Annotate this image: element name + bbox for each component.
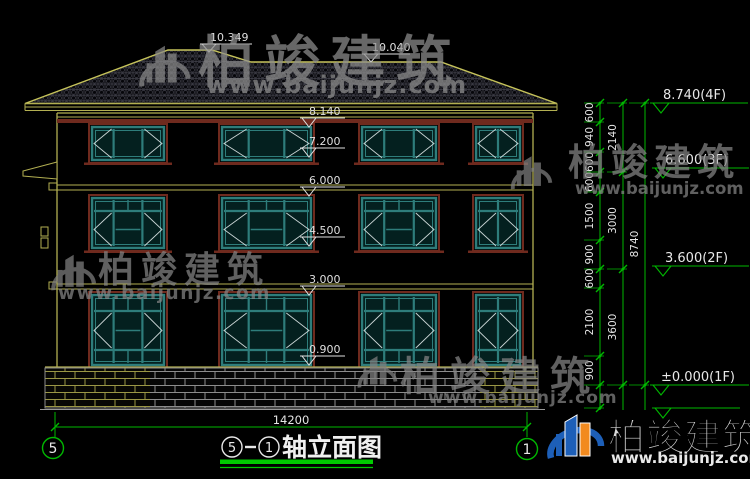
level-marker-1f: ±0.000(1F)	[650, 370, 749, 395]
window-frame	[362, 127, 436, 160]
window-sill	[354, 163, 444, 166]
axis-bubble-left: 5	[43, 438, 64, 459]
window	[354, 195, 444, 253]
window-sill	[354, 251, 444, 254]
left-ledge-upper	[49, 183, 57, 190]
level-label: 3.000	[309, 273, 341, 286]
window	[468, 195, 528, 253]
dim-value: 600	[584, 102, 596, 122]
left-canopy	[23, 162, 57, 179]
window	[84, 195, 172, 253]
axis-bubble-right: 1	[517, 439, 538, 460]
width-dim-value: 14200	[273, 413, 310, 427]
watermark-brand: 柏竣建筑	[568, 141, 740, 184]
brand-logo-color-icon	[550, 415, 601, 458]
level-label: 8.140	[309, 105, 341, 118]
window-sill	[468, 163, 528, 166]
cad-elevation-viewport: 10.349 10.040 8.140 7.200 6.000 4.500 3.…	[0, 0, 750, 479]
level-label: 6.000	[309, 174, 341, 187]
window-sill	[214, 163, 319, 166]
title-block: 5 1 轴立面图	[220, 433, 382, 468]
watermark-right: 柏竣建筑 www.baijunjz.com	[513, 141, 744, 198]
watermark-url: www.baijunjz.com	[575, 179, 744, 198]
dim-value: 1500	[584, 203, 596, 230]
plinth-bricks-left-corner	[45, 368, 150, 408]
level-label: 4.500	[309, 224, 341, 237]
window-frame	[92, 127, 164, 160]
floor3-band	[57, 185, 533, 190]
window-frame	[222, 127, 311, 160]
left-pipe-upper	[41, 227, 48, 236]
roof-eave-band	[25, 104, 557, 111]
level-label: 0.900	[309, 343, 341, 356]
dim-value: 600	[584, 268, 596, 288]
watermark-url: www.baijunjz.com	[611, 449, 750, 467]
title-axis-from: 5	[228, 441, 236, 456]
level-label: ±0.000(1F)	[661, 370, 735, 385]
dim-value: 8740	[629, 231, 641, 258]
left-pipe-lower	[41, 238, 48, 248]
dim-value: 2100	[584, 309, 596, 336]
watermark-url: www.baijunjz.com	[428, 388, 618, 408]
title-axis-to: 1	[265, 441, 273, 456]
level-marker-8140: 8.140	[300, 105, 345, 127]
roof-beam-band	[57, 119, 533, 123]
level-label: 3.600(2F)	[665, 251, 728, 266]
drawing-title: 轴立面图	[282, 433, 382, 462]
level-label: 8.740(4F)	[663, 88, 726, 103]
window	[468, 124, 528, 165]
dim-value: 900	[584, 244, 596, 264]
window	[84, 124, 172, 165]
axis-number: 1	[523, 442, 532, 458]
dim-value: 3000	[607, 207, 619, 234]
watermark-logo-bottom-right: 柏竣建筑 www.baijunjz.com	[550, 415, 750, 467]
storey-level-markers: 8.740(4F) 6.600(3F) 3.600(2F) ±0.000(1F)	[650, 88, 749, 418]
window	[214, 124, 319, 165]
dim-value: 3600	[607, 314, 619, 341]
window	[354, 124, 444, 165]
windows-group	[84, 124, 528, 368]
watermark-left: 柏竣建筑 www.baijunjz.com	[53, 250, 271, 304]
level-label: 7.200	[309, 135, 341, 148]
window	[214, 195, 319, 253]
level-marker-4f: 8.740(4F)	[650, 88, 748, 113]
elevation-drawing: 10.349 10.040 8.140 7.200 6.000 4.500 3.…	[0, 0, 750, 479]
watermark-url: www.baijunjz.com	[58, 283, 271, 304]
watermark-url: www.baijunjz.com	[206, 71, 467, 99]
window-sill	[84, 163, 172, 166]
level-marker-2f: 3.600(2F)	[652, 251, 749, 276]
axis-number: 5	[49, 441, 58, 457]
title-underline-thick	[220, 460, 373, 465]
window-sill	[468, 251, 528, 254]
